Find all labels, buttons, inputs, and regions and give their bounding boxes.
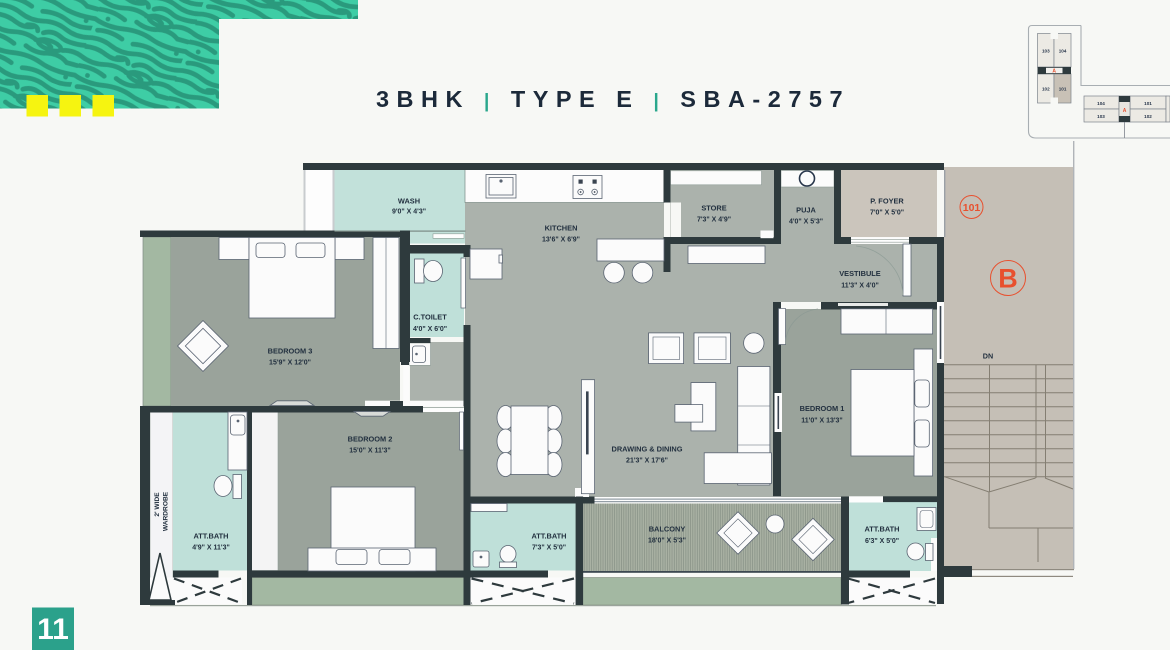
svg-text:104: 104: [1097, 101, 1105, 106]
svg-text:11'3" X 4'0": 11'3" X 4'0": [841, 283, 879, 290]
svg-text:102: 102: [1042, 87, 1050, 92]
svg-text:BALCONY: BALCONY: [649, 525, 686, 534]
svg-text:ATT.BATH: ATT.BATH: [864, 525, 899, 534]
svg-text:104: 104: [1059, 49, 1067, 54]
svg-text:BEDROOM 3: BEDROOM 3: [268, 347, 313, 356]
svg-text:ATT.BATH: ATT.BATH: [531, 532, 566, 541]
svg-text:PUJA: PUJA: [796, 206, 816, 215]
svg-text:18'0" X 5'3": 18'0" X 5'3": [648, 538, 686, 545]
svg-text:DRAWING & DINING: DRAWING & DINING: [611, 445, 682, 454]
svg-text:101: 101: [1144, 101, 1152, 106]
svg-text:4'0" X 6'0": 4'0" X 6'0": [413, 326, 447, 333]
svg-text:15'9" X 12'0": 15'9" X 12'0": [269, 360, 311, 367]
svg-text:15'0" X 11'3": 15'0" X 11'3": [349, 448, 391, 455]
svg-text:4'9" X 11'3": 4'9" X 11'3": [192, 545, 230, 552]
svg-text:7'0" X 5'0": 7'0" X 5'0": [870, 210, 904, 217]
svg-text:DN: DN: [983, 352, 993, 361]
svg-text:103: 103: [1042, 49, 1050, 54]
svg-text:101: 101: [1059, 87, 1067, 92]
svg-text:21'3" X 17'6": 21'3" X 17'6": [626, 458, 668, 465]
svg-text:ATT.BATH: ATT.BATH: [193, 532, 228, 541]
svg-text:B: B: [998, 264, 1018, 294]
svg-text:WARDROBE: WARDROBE: [163, 491, 170, 531]
svg-text:BEDROOM 2: BEDROOM 2: [348, 435, 393, 444]
svg-text:102: 102: [1144, 114, 1152, 119]
svg-text:9'0" X 4'3": 9'0" X 4'3": [392, 209, 426, 216]
svg-text:6'3" X 5'0": 6'3" X 5'0": [865, 538, 899, 545]
svg-text:101: 101: [963, 202, 981, 214]
svg-text:VESTIBULE: VESTIBULE: [839, 269, 881, 278]
svg-text:4'0" X 5'3": 4'0" X 5'3": [789, 219, 823, 226]
svg-text:STORE: STORE: [701, 204, 726, 213]
svg-text:103: 103: [1097, 114, 1105, 119]
svg-text:A: A: [1123, 108, 1127, 114]
svg-text:3BHK | TYPE E | SBA-2757: 3BHK | TYPE E | SBA-2757: [376, 86, 850, 112]
svg-text:WASH: WASH: [398, 197, 420, 206]
svg-text:A: A: [1052, 69, 1056, 75]
svg-text:KITCHEN: KITCHEN: [545, 224, 578, 233]
svg-text:P. FOYER: P. FOYER: [870, 197, 904, 206]
svg-text:7'3" X 4'9": 7'3" X 4'9": [697, 217, 731, 224]
svg-text:7'3" X 5'0": 7'3" X 5'0": [532, 545, 566, 552]
svg-text:11'0" X 13'3": 11'0" X 13'3": [801, 418, 843, 425]
svg-text:13'6" X 6'9": 13'6" X 6'9": [542, 237, 580, 244]
svg-text:2' WIDE: 2' WIDE: [154, 492, 161, 517]
svg-text:C.TOILET: C.TOILET: [413, 313, 447, 322]
svg-text:BEDROOM 1: BEDROOM 1: [800, 404, 845, 413]
svg-text:11: 11: [37, 613, 69, 646]
